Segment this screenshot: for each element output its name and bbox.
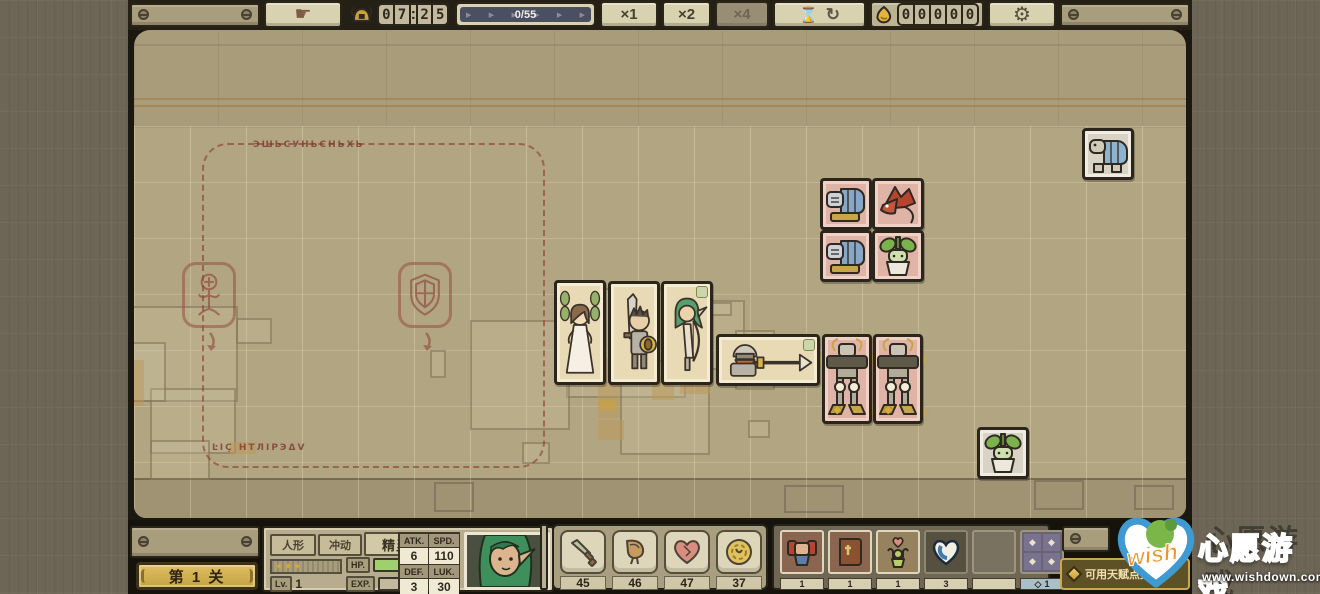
empty-slot-count [972,578,1016,590]
screw-icon [241,9,252,20]
enemy-card-sprout[interactable] [977,427,1029,479]
sprout-icon [980,430,1026,476]
game-board: ЭШЬCУНЬCНЬXЬ ĿIÇ НТЛIРЭΔV [134,30,1186,518]
wave-timer: 0 7 : 2 5 [350,1,449,28]
speed-x2-button[interactable]: ×2 [662,1,711,28]
enemy-card-armor-beetle[interactable] [820,178,872,230]
enemy-card-armor-beetle[interactable] [820,230,872,282]
skill-book-count: 1 [828,578,872,590]
speed-x1-button[interactable]: ×1 [600,1,658,28]
race-tag-label: 人形 [282,537,304,553]
coin-digit: 0 [963,5,977,24]
level-label: Lv. [270,576,292,592]
timer-digits: 0 7 : 2 5 [377,3,449,26]
top-left-plate [130,3,260,27]
hp-label: HP. [346,557,370,573]
stat-grid: ATK. SPD. 6 110 DEF. LUK. 3 30 [398,532,460,590]
spd-label: SPD. [429,534,459,547]
coin-digit: 0 [947,5,961,24]
warrior-card-count: 1 [780,578,824,590]
trait-tag: 冲动 [318,534,362,556]
coin-digit: 0 [915,5,929,24]
star-rating: ★★★ [270,559,342,574]
speed-x1-label: ×1 [620,6,637,23]
book-icon [834,535,866,569]
game-viewport: ☛ 0 7 : 2 5 ▶ [128,0,1192,594]
atk-label: ATK. [400,534,428,547]
top-right-plate [1060,3,1190,27]
heart-shield-count: 3 [924,578,968,590]
leaf-badge-icon [803,339,815,351]
shield-stamp [398,262,452,328]
healing-tree-icon [187,267,231,323]
exp-label: EXP. [346,576,375,592]
def-label: DEF. [400,565,428,578]
beam-diamond-icon: ◆ [884,403,892,416]
deployment-zone [202,143,545,468]
level-row: Lv. 1 [270,576,342,592]
watermark-title: 心愿游戏 [1198,524,1320,594]
coin-resource-button[interactable] [716,530,762,574]
coin-digit: 0 [899,5,913,24]
heart-count: 47 [664,576,710,590]
enemy-card-stone-turtle[interactable] [1082,128,1134,180]
food-resource-button[interactable] [612,530,658,574]
enemy-card-dragon[interactable] [872,178,924,230]
zone-footer-runes: ĿIÇ НТЛIРЭΔV [212,443,306,453]
hourglass-icon: ⌛ [799,6,818,24]
progress-label: 0/55 [460,9,591,21]
talent-diamond-count: ◇ 1 [1020,578,1064,590]
character-panel: 人形 冲动 精灵猎手 ★★★ Lv. 1 HP. 42 [262,526,554,592]
timer-digit: 5 [433,5,447,24]
speed-x2-label: ×2 [678,6,695,23]
item-slot-warrior-card[interactable] [780,530,824,574]
def-value: 3 [400,579,428,594]
food-count: 46 [612,576,658,590]
hud-right-plate [1062,526,1110,552]
heart-resource-button[interactable] [664,530,710,574]
coin-digits: 0 0 0 0 0 [897,3,979,26]
hud-left-plate [130,526,260,558]
hud-divider [540,524,548,590]
armor-beetle-icon [823,233,869,279]
dragon-icon [875,181,921,227]
screw-icon [1070,533,1081,544]
level-value: 1 [295,577,302,591]
timer-colon: : [411,5,416,24]
sword-icon [568,537,598,567]
screw-icon [138,9,149,20]
warrior-icon [611,284,657,382]
zone-title-runes: ЭШЬCУНЬCНЬXЬ [253,140,364,150]
unit-card-elf-archer[interactable] [661,281,713,385]
coin-digit: 0 [931,5,945,24]
elf-portrait-icon [467,535,547,587]
hand-speed-button[interactable]: ☛ [264,1,342,28]
maiden-icon [557,283,603,382]
screw-icon [241,536,252,547]
coin-counter: 0 0 0 0 0 [870,1,984,28]
item-slot-skill-book[interactable] [828,530,872,574]
pause-restart-button[interactable]: ⌛ ↻ [773,1,866,28]
speed-x4-label: ×4 [733,6,750,23]
heart-shield-icon [931,538,961,566]
watermark-shadow-text: 心愿游戏 [1204,516,1320,594]
stamp-arrow-icon [204,332,220,352]
timer-digit: 7 [395,5,409,24]
talent-points-banner[interactable]: 可用天赋点数: [1060,558,1190,590]
screw-icon [138,536,149,547]
horned-mech-icon [876,337,920,421]
unit-card-maiden[interactable] [554,280,606,385]
luk-label: LUK. [429,565,459,578]
gold-coin-icon [724,537,754,567]
settings-button[interactable]: ⚙ [988,1,1056,28]
item-slot-empty[interactable] [972,530,1016,574]
healing-tree-stamp [182,262,236,328]
gear-icon: ⚙ [1013,2,1031,27]
sprout-icon [875,233,921,279]
heart-icon [672,538,702,566]
leaf-badge-icon [696,286,708,298]
warrior-card-icon [785,535,819,569]
shield-stamp-icon [403,267,447,323]
stage-label: 第 1 关 [169,566,226,587]
unit-card-warrior[interactable] [608,281,660,385]
stage-banner: 第 1 关 [136,562,258,590]
screw-icon [1171,9,1182,20]
diamond-outline-icon: ◇ [1035,579,1042,590]
character-portrait [464,532,550,590]
atk-value: 6 [400,548,428,564]
elf-archer-icon [664,284,710,382]
timer-digit: 0 [379,5,393,24]
stone-turtle-icon [1085,131,1131,177]
item-slot-talent-diamonds[interactable]: ◆◆ ◆◆ [1020,530,1064,574]
beam-diamond-icon: ◆ [833,403,841,416]
worship-figure-icon [882,535,914,569]
attack-resource-button[interactable] [560,530,606,574]
worship-count: 1 [876,578,920,590]
item-slot-worship[interactable] [876,530,920,574]
resource-group: 45 46 47 37 [552,524,768,590]
race-tag: 人形 [270,534,316,556]
enemy-card-horned-mech[interactable] [873,334,923,424]
game-screenshot: ☛ 0 7 : 2 5 ▶ [0,0,1320,594]
talent-diamond-icon [1066,566,1083,583]
trait-tag-label: 冲动 [329,537,351,553]
unit-card-dwarf-spearman[interactable] [716,334,820,386]
enemy-card-sprout[interactable] [872,230,924,282]
star-icons: ★★★ [275,561,302,572]
armor-beetle-icon [823,181,869,227]
luk-value: 30 [429,579,459,594]
spd-value: 110 [429,548,459,564]
horned-mech-icon [825,337,869,421]
item-slot-heart-shield[interactable] [924,530,968,574]
gold-coin-icon [875,5,893,25]
bottom-hud: 第 1 关 人形 冲动 精灵猎手 ★★★ Lv. 1 [128,520,1192,594]
coin-count: 37 [716,576,762,590]
talent-points-label: 可用天赋点数: [1085,566,1155,582]
top-bar: ☛ 0 7 : 2 5 ▶ [128,0,1192,30]
stamp-arrow-icon [420,332,436,352]
wave-progress-bar: ▶ ▶ ▶ 0/55 ▶ ▶ ▶ [455,2,596,27]
meat-icon [621,537,649,567]
screw-icon [1068,9,1079,20]
loop-icon: ↻ [826,5,840,25]
talent-diamonds-icon: ◆◆ ◆◆ [1024,534,1060,570]
timer-digit: 2 [418,5,432,24]
attack-count: 45 [560,576,606,590]
helmet-icon [350,5,373,25]
watermark-url: www.wishdown.com [1202,570,1320,584]
item-slot-group: ◆◆ ◆◆ 1 1 1 3 ◇ 1 [772,524,1050,590]
speed-x4-button[interactable]: ×4 [715,1,769,28]
pointing-hand-icon: ☛ [294,3,311,26]
enemy-card-horned-mech[interactable] [822,334,872,424]
